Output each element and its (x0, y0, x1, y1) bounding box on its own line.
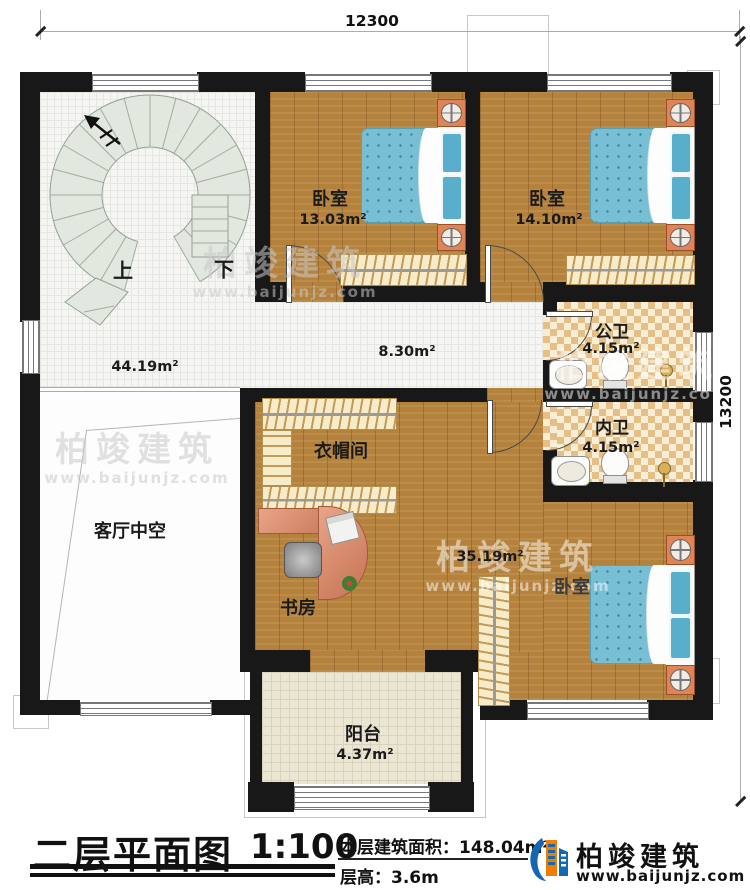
dim-right-label: 13200 (717, 375, 735, 429)
study-desk (258, 508, 324, 534)
balcony-passage (310, 650, 425, 672)
bedroom1-label: 卧室 (312, 185, 348, 211)
wall (197, 72, 305, 92)
shower-stem (665, 375, 667, 387)
master-door-leaf (487, 400, 493, 454)
wall (425, 650, 480, 672)
corridor-railing2 (40, 391, 240, 392)
plan-title: 二层平面图 (33, 824, 233, 879)
floor-height-label: 层高： (340, 868, 391, 888)
floor-height-row: 层高：3.6m (340, 863, 439, 888)
corridor-area: 8.30m² (378, 344, 435, 360)
inner-bath-area: 4.15m² (582, 440, 639, 456)
plant (342, 576, 357, 591)
living-void-label: 客厅中空 (94, 517, 166, 543)
balcony-railing (294, 786, 430, 810)
public-bath-area: 4.15m² (582, 341, 639, 357)
lamp-icon (670, 103, 691, 123)
dim-line-top (40, 31, 740, 32)
wall (255, 92, 270, 282)
cloakroom-label: 衣帽间 (314, 437, 368, 463)
shower-stem (663, 473, 665, 487)
stairs-down-label: 下 (214, 254, 234, 283)
bedroom1-nightstand (437, 99, 466, 127)
title-underline2 (30, 873, 335, 877)
brand-logo-icon (528, 834, 572, 884)
inner-bath-door-leaf (546, 401, 593, 407)
chimney-outline (467, 15, 549, 74)
window (92, 74, 199, 92)
window (80, 702, 212, 716)
wall (250, 672, 262, 784)
floor-plan: 柏竣建筑 www.baijunjz.com 柏竣建筑 www.baijunjz.… (0, 0, 750, 890)
master-pillow (669, 616, 692, 660)
dim-top-label: 12300 (345, 12, 399, 30)
bed-sheet (418, 128, 441, 223)
bedroom1-bed (361, 128, 441, 223)
cloakroom-wardrobe-top (262, 398, 397, 430)
spiral-staircase (40, 92, 255, 388)
master-area: 35.19m² (456, 549, 523, 565)
brand-website: www.baijunjz.com (576, 867, 745, 885)
sink-basin (555, 365, 583, 385)
bedroom2-label: 卧室 (529, 185, 565, 211)
lamp-icon (670, 228, 691, 247)
bed-sheet (647, 128, 670, 223)
bedroom2-bed (590, 128, 670, 223)
wall (543, 282, 693, 302)
wall (20, 700, 80, 715)
info-divider (338, 858, 528, 860)
hall-area: 44.19m² (111, 359, 178, 375)
wall (428, 782, 474, 812)
lamp-icon (670, 669, 691, 691)
master-nightstand (666, 665, 695, 695)
wall (38, 72, 92, 92)
wall (693, 72, 713, 332)
master-pillow (669, 570, 692, 616)
bedroom2-door-leaf (485, 245, 491, 303)
study-chair (284, 542, 322, 578)
study-label: 书房 (280, 594, 316, 620)
bedroom2-area: 14.10m² (515, 212, 582, 228)
window (305, 74, 432, 92)
dim-ext (40, 10, 41, 40)
wall (647, 700, 713, 720)
bedroom1-door-leaf (286, 245, 292, 303)
wall (240, 650, 310, 672)
inner-bath-sink (551, 456, 590, 486)
wall (430, 72, 547, 92)
master-nightstand (666, 535, 695, 565)
bedroom2-wardrobe (566, 255, 695, 285)
window (695, 422, 713, 482)
lamp-icon (441, 103, 462, 123)
inner-bath-label: 内卫 (595, 414, 629, 439)
lamp-icon (441, 228, 462, 247)
floor-area-row: 本层建筑面积：148.04m² (340, 833, 550, 858)
wall (693, 390, 713, 422)
bedroom2-pillow (670, 175, 692, 221)
wall (461, 672, 473, 784)
bedroom1-pillow (441, 132, 463, 174)
sink-basin (557, 461, 586, 482)
cloakroom-shelf (262, 430, 292, 486)
wall (248, 782, 294, 812)
master-label: 卧室 (554, 573, 590, 599)
window (527, 702, 649, 720)
stairs-up-label: 上 (113, 255, 133, 284)
wall (693, 480, 713, 704)
master-bed (590, 565, 669, 664)
lamp-icon (670, 539, 691, 561)
bedroom1-area: 13.03m² (299, 212, 366, 228)
wall (210, 700, 255, 715)
window (22, 320, 40, 374)
wall (543, 388, 693, 402)
master-wardrobe (478, 576, 510, 706)
balcony-label: 阳台 (345, 720, 381, 746)
bedroom2-nightstand (666, 224, 695, 251)
wall (465, 92, 480, 282)
window (695, 332, 713, 392)
bedroom1-wardrobe (340, 254, 467, 286)
bed-sheet (646, 565, 669, 664)
bedroom2-nightstand (666, 99, 695, 127)
inner-bath-toilet-tank (603, 475, 627, 484)
window (547, 74, 672, 92)
dim-line-right (740, 36, 741, 802)
public-bath-sink (549, 360, 587, 389)
public-bath-toilet-tank (603, 380, 627, 389)
wall (255, 282, 288, 302)
floor-height-value: 3.6m (391, 868, 439, 888)
wall (20, 372, 40, 702)
bedroom1-pillow (441, 175, 463, 221)
floor-area-label: 本层建筑面积： (340, 838, 459, 858)
bedroom2-pillow (670, 132, 692, 174)
public-bath-label: 公卫 (595, 318, 629, 343)
bedroom1-nightstand (437, 224, 466, 251)
wall (20, 72, 40, 322)
public-bath-door-leaf (546, 311, 593, 317)
wall (240, 388, 255, 672)
balcony-area: 4.37m² (336, 747, 393, 763)
